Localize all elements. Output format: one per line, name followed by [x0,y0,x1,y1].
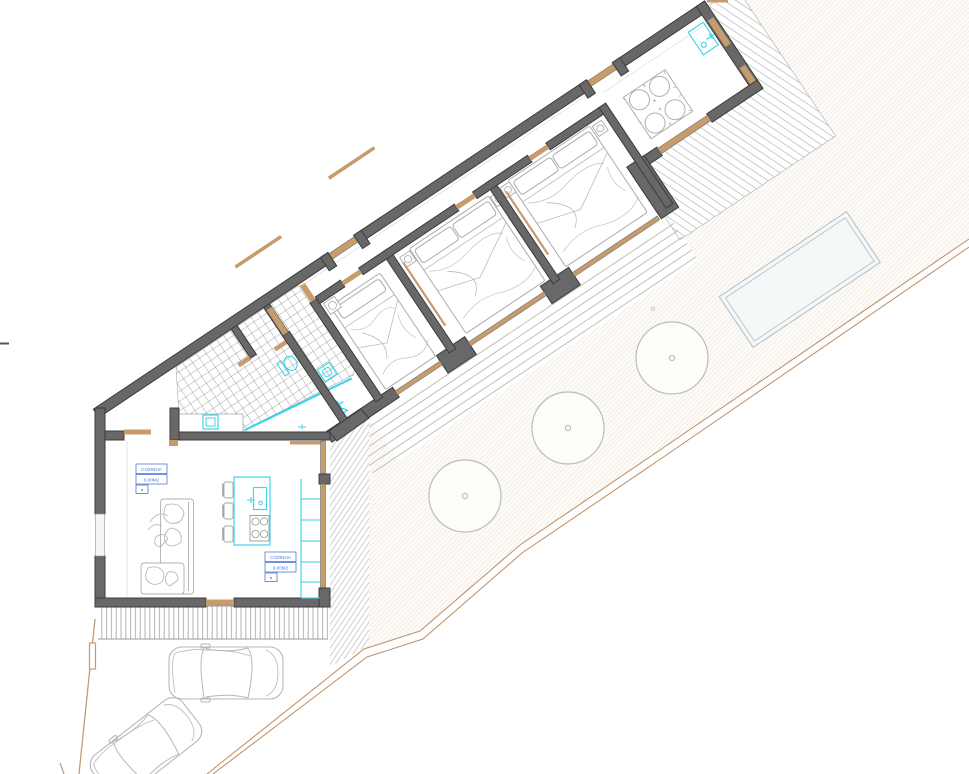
svg-text:COZINHA: COZINHA [270,555,292,560]
svg-text:9.00M2: 9.00M2 [273,566,289,571]
svg-text:8.00M2: 8.00M2 [144,478,160,483]
svg-text:▼: ▼ [269,576,273,581]
svg-text:COZINHA: COZINHA [141,467,163,472]
svg-text:▼: ▼ [140,488,144,493]
